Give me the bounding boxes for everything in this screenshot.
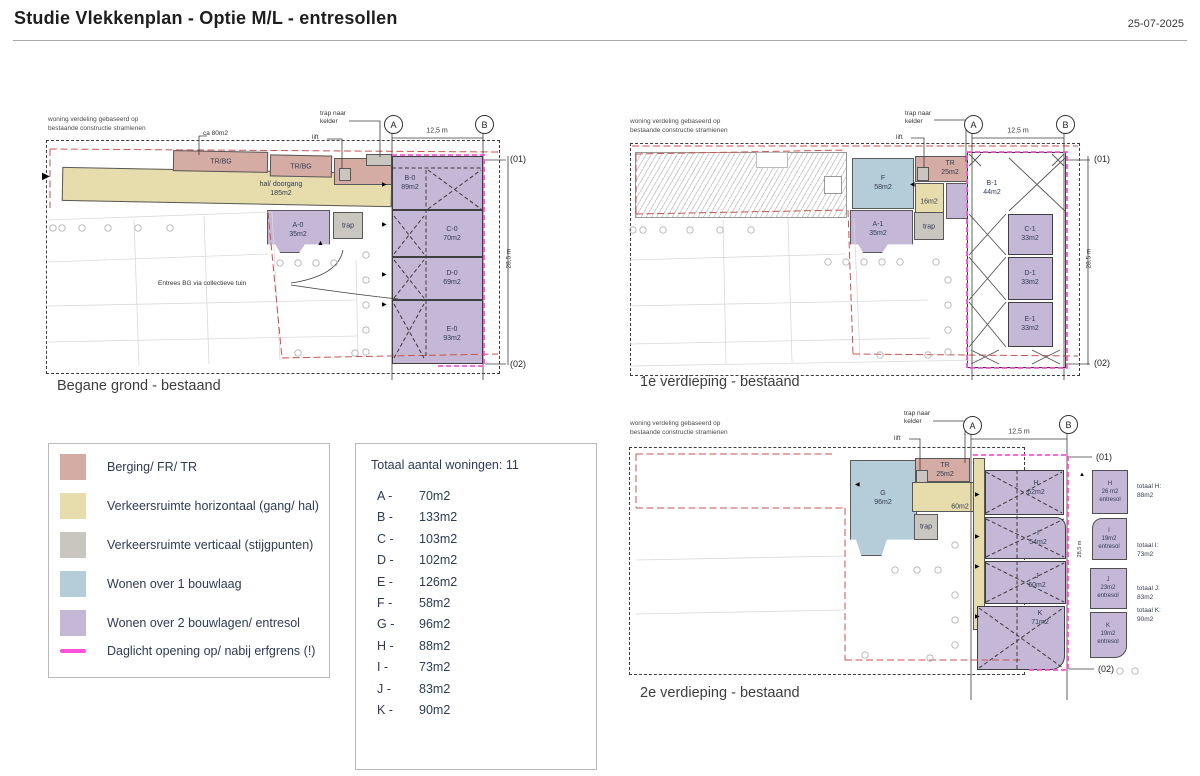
dim-vertical: 28,5 m [1086, 239, 1093, 279]
entresol-label-h: H 26 m2 entresol [1099, 480, 1120, 504]
totals-row: G -96m2 [377, 614, 596, 635]
entrance-arrow: ▶ [42, 172, 50, 182]
roof-notch [756, 152, 788, 168]
dim-vertical: 28,5 m [1077, 529, 1083, 569]
unit-key: B - [377, 507, 419, 528]
entresol-total-h: totaal H: 88m2 [1137, 482, 1161, 500]
totals-row: D -102m2 [377, 550, 596, 571]
unit-area: 133m2 [419, 510, 457, 524]
entresol-label-i: I 19m2 entresol [1098, 527, 1119, 551]
legend-label: Verkeersruimte verticaal (stijgpunten) [107, 538, 313, 552]
room-trap [914, 514, 938, 540]
date-label: 25-07-2025 [1128, 18, 1184, 30]
marker-02: (02) [1098, 664, 1114, 674]
room-i [985, 517, 1066, 559]
page-title: Studie Vlekkenplan - Optie M/L - entreso… [14, 8, 398, 29]
entrance-arrow: ▶ [975, 534, 980, 540]
unit-area: 90m2 [419, 703, 450, 717]
entresol-total-k: totaal K: 90m2 [1137, 606, 1161, 624]
totals-row: F -58m2 [377, 593, 596, 614]
totals-panel: Totaal aantal woningen: 11 A -70m2 B -13… [355, 443, 597, 770]
unit-key: J - [377, 679, 419, 700]
unit-key: H - [377, 636, 419, 657]
legend-daglicht-line [60, 649, 86, 653]
plan-caption-2e-verdieping: 2e verdieping - bestaand [640, 685, 800, 701]
marker-01: (01) [1094, 154, 1110, 164]
marker-02: (02) [510, 359, 526, 369]
legend-item: Wonen over 2 bouwlagen/ entresol [60, 610, 300, 636]
room-trap [914, 212, 944, 240]
room-e0 [392, 300, 483, 364]
roof-hatch-area [635, 152, 847, 218]
unit-area: 70m2 [419, 489, 450, 503]
unit-key: G - [377, 614, 419, 635]
corridor-vertical [973, 458, 985, 630]
room-f [852, 158, 914, 209]
lift-label: lift [312, 134, 319, 142]
entresol-total-j: totaal J: 83m2 [1137, 584, 1160, 602]
plan-2e-verdieping: woning verdeling gebaseerd op bestaande … [628, 408, 1200, 718]
plan-caption-1e-verdieping: 1e verdieping - bestaand [640, 374, 800, 390]
room-trbg-2 [270, 154, 332, 177]
entresol-label-k: K 19m2 entresol [1097, 622, 1118, 646]
entrance-arrow: ▶ [975, 564, 980, 570]
grid-circle-a: A [384, 115, 403, 134]
totals-row: H -88m2 [377, 636, 596, 657]
plan-note: woning verdeling gebaseerd op bestaande … [48, 116, 146, 134]
unit-area: 103m2 [419, 532, 457, 546]
legend-label: Berging/ FR/ TR [107, 460, 197, 474]
ca80-label: ca 80m2 [203, 130, 228, 138]
unit-area: 96m2 [419, 617, 450, 631]
room-d0 [392, 257, 483, 300]
totals-row: A -70m2 [377, 486, 596, 507]
legend-swatch-verkeer-horizontaal [60, 493, 86, 519]
entrance-arrow: ▶ [382, 272, 387, 278]
lift-label: lift [896, 134, 903, 142]
legend-swatch-verkeer-verticaal [60, 532, 86, 558]
trap-naar-kelder-label: trap naar kelder [904, 410, 930, 427]
room-h [985, 470, 1064, 515]
grid-circle-b: B [1059, 415, 1078, 434]
roof-stair-box [824, 176, 842, 194]
room-k [977, 606, 1065, 670]
header-divider [13, 40, 1187, 41]
legend-label: Wonen over 1 bouwlaag [107, 577, 242, 591]
lift-shaft [917, 167, 929, 181]
totals-row: I -73m2 [377, 657, 596, 678]
plan-caption-begane-grond: Begane grond - bestaand [57, 378, 221, 394]
totals-row: K -90m2 [377, 700, 596, 721]
legend-label: Daglicht opening op/ nabij erfgrens (!) [107, 644, 315, 658]
legend: Berging/ FR/ TR Verkeersruimte horizonta… [48, 443, 330, 678]
room-trap [333, 212, 363, 239]
unit-key: C - [377, 529, 419, 550]
dim-ab: 12,5 m [426, 128, 447, 135]
unit-key: I - [377, 657, 419, 678]
lift-label: lift [894, 435, 901, 443]
lift-shaft [339, 168, 351, 181]
room-c1 [1008, 214, 1053, 255]
corridor-60m2 [912, 482, 974, 512]
room-e1 [1008, 302, 1053, 347]
grid-circle-a: A [963, 416, 982, 435]
unit-key: A - [377, 486, 419, 507]
legend-item: Verkeersruimte horizontaal (gang/ hal) [60, 493, 319, 519]
grid-circle-a: A [964, 115, 983, 134]
legend-item: Wonen over 1 bouwlaag [60, 571, 242, 597]
marker-01: (01) [510, 154, 526, 164]
unit-area: 83m2 [419, 682, 450, 696]
unit-area: 73m2 [419, 660, 450, 674]
entresol-label-j: J 23m2 entresol [1097, 576, 1118, 600]
room-j [985, 561, 1066, 604]
entrance-arrow: ▶ [382, 182, 387, 188]
unit-area: 102m2 [419, 553, 457, 567]
room-c0 [392, 210, 483, 257]
grid-circle-b: B [1056, 115, 1075, 134]
room-b0 [392, 156, 483, 210]
legend-swatch-wonen-2 [60, 610, 86, 636]
dim-ab: 12,5 m [1007, 128, 1028, 135]
unit-area: 58m2 [419, 596, 450, 610]
trap-naar-kelder-label: trap naar kelder [905, 110, 931, 127]
plan-note: woning verdeling gebaseerd op bestaande … [630, 118, 728, 136]
legend-item: Daglicht opening op/ nabij erfgrens (!) [60, 644, 315, 658]
entrance-arrow: ▶ [382, 302, 387, 308]
totals-row: B -133m2 [377, 507, 596, 528]
entrance-arrow: ▶ [975, 614, 980, 620]
room-trbg-1 [173, 150, 268, 173]
totals-row: J -83m2 [377, 679, 596, 700]
unit-key: E - [377, 572, 419, 593]
kelder-trap-box [366, 154, 392, 166]
legend-swatch-berging [60, 454, 86, 480]
entrance-arrow: ▲ [1079, 472, 1085, 478]
legend-label: Wonen over 2 bouwlagen/ entresol [107, 616, 300, 630]
trap-naar-kelder-label: trap naar kelder [320, 110, 346, 127]
dim-ab: 12,5 m [1008, 429, 1029, 436]
totals-title: Totaal aantal woningen: 11 [371, 458, 596, 472]
legend-item: Verkeersruimte verticaal (stijgpunten) [60, 532, 313, 558]
entrance-arrow: ◀ [855, 482, 860, 488]
sheet: { "header": { "title": "Studie Vlekkenpl… [0, 0, 1200, 776]
unit-area: 88m2 [419, 639, 450, 653]
grid-circle-b: B [475, 115, 494, 134]
entresol-total-i: totaal I: 73m2 [1137, 541, 1158, 559]
entrance-arrow: ▶ [382, 222, 387, 228]
plan-note: woning verdeling gebaseerd op bestaande … [630, 420, 728, 438]
entrees-label: Entrees BG via collectieve tuin [158, 280, 246, 288]
entrance-arrow: ◀ [910, 182, 915, 188]
totals-row: E -126m2 [377, 572, 596, 593]
dim-vertical: 28,5 m [506, 239, 513, 279]
marker-01: (01) [1096, 452, 1112, 462]
unit-key: F - [377, 593, 419, 614]
entrance-arrow: ▶ [975, 492, 980, 498]
legend-swatch-wonen-1 [60, 571, 86, 597]
unit-key: D - [377, 550, 419, 571]
room-d1 [1008, 257, 1053, 300]
unit-area: 126m2 [419, 575, 457, 589]
legend-label: Verkeersruimte horizontaal (gang/ hal) [107, 499, 319, 513]
unit-key: K - [377, 700, 419, 721]
plan-1e-verdieping: woning verdeling gebaseerd op bestaande … [628, 108, 1133, 408]
entrance-arrow: ▲ [317, 240, 324, 247]
marker-02: (02) [1094, 358, 1110, 368]
plan-begane-grond: woning verdeling gebaseerd op bestaande … [46, 108, 551, 408]
totals-row: C -103m2 [377, 529, 596, 550]
legend-item: Berging/ FR/ TR [60, 454, 197, 480]
